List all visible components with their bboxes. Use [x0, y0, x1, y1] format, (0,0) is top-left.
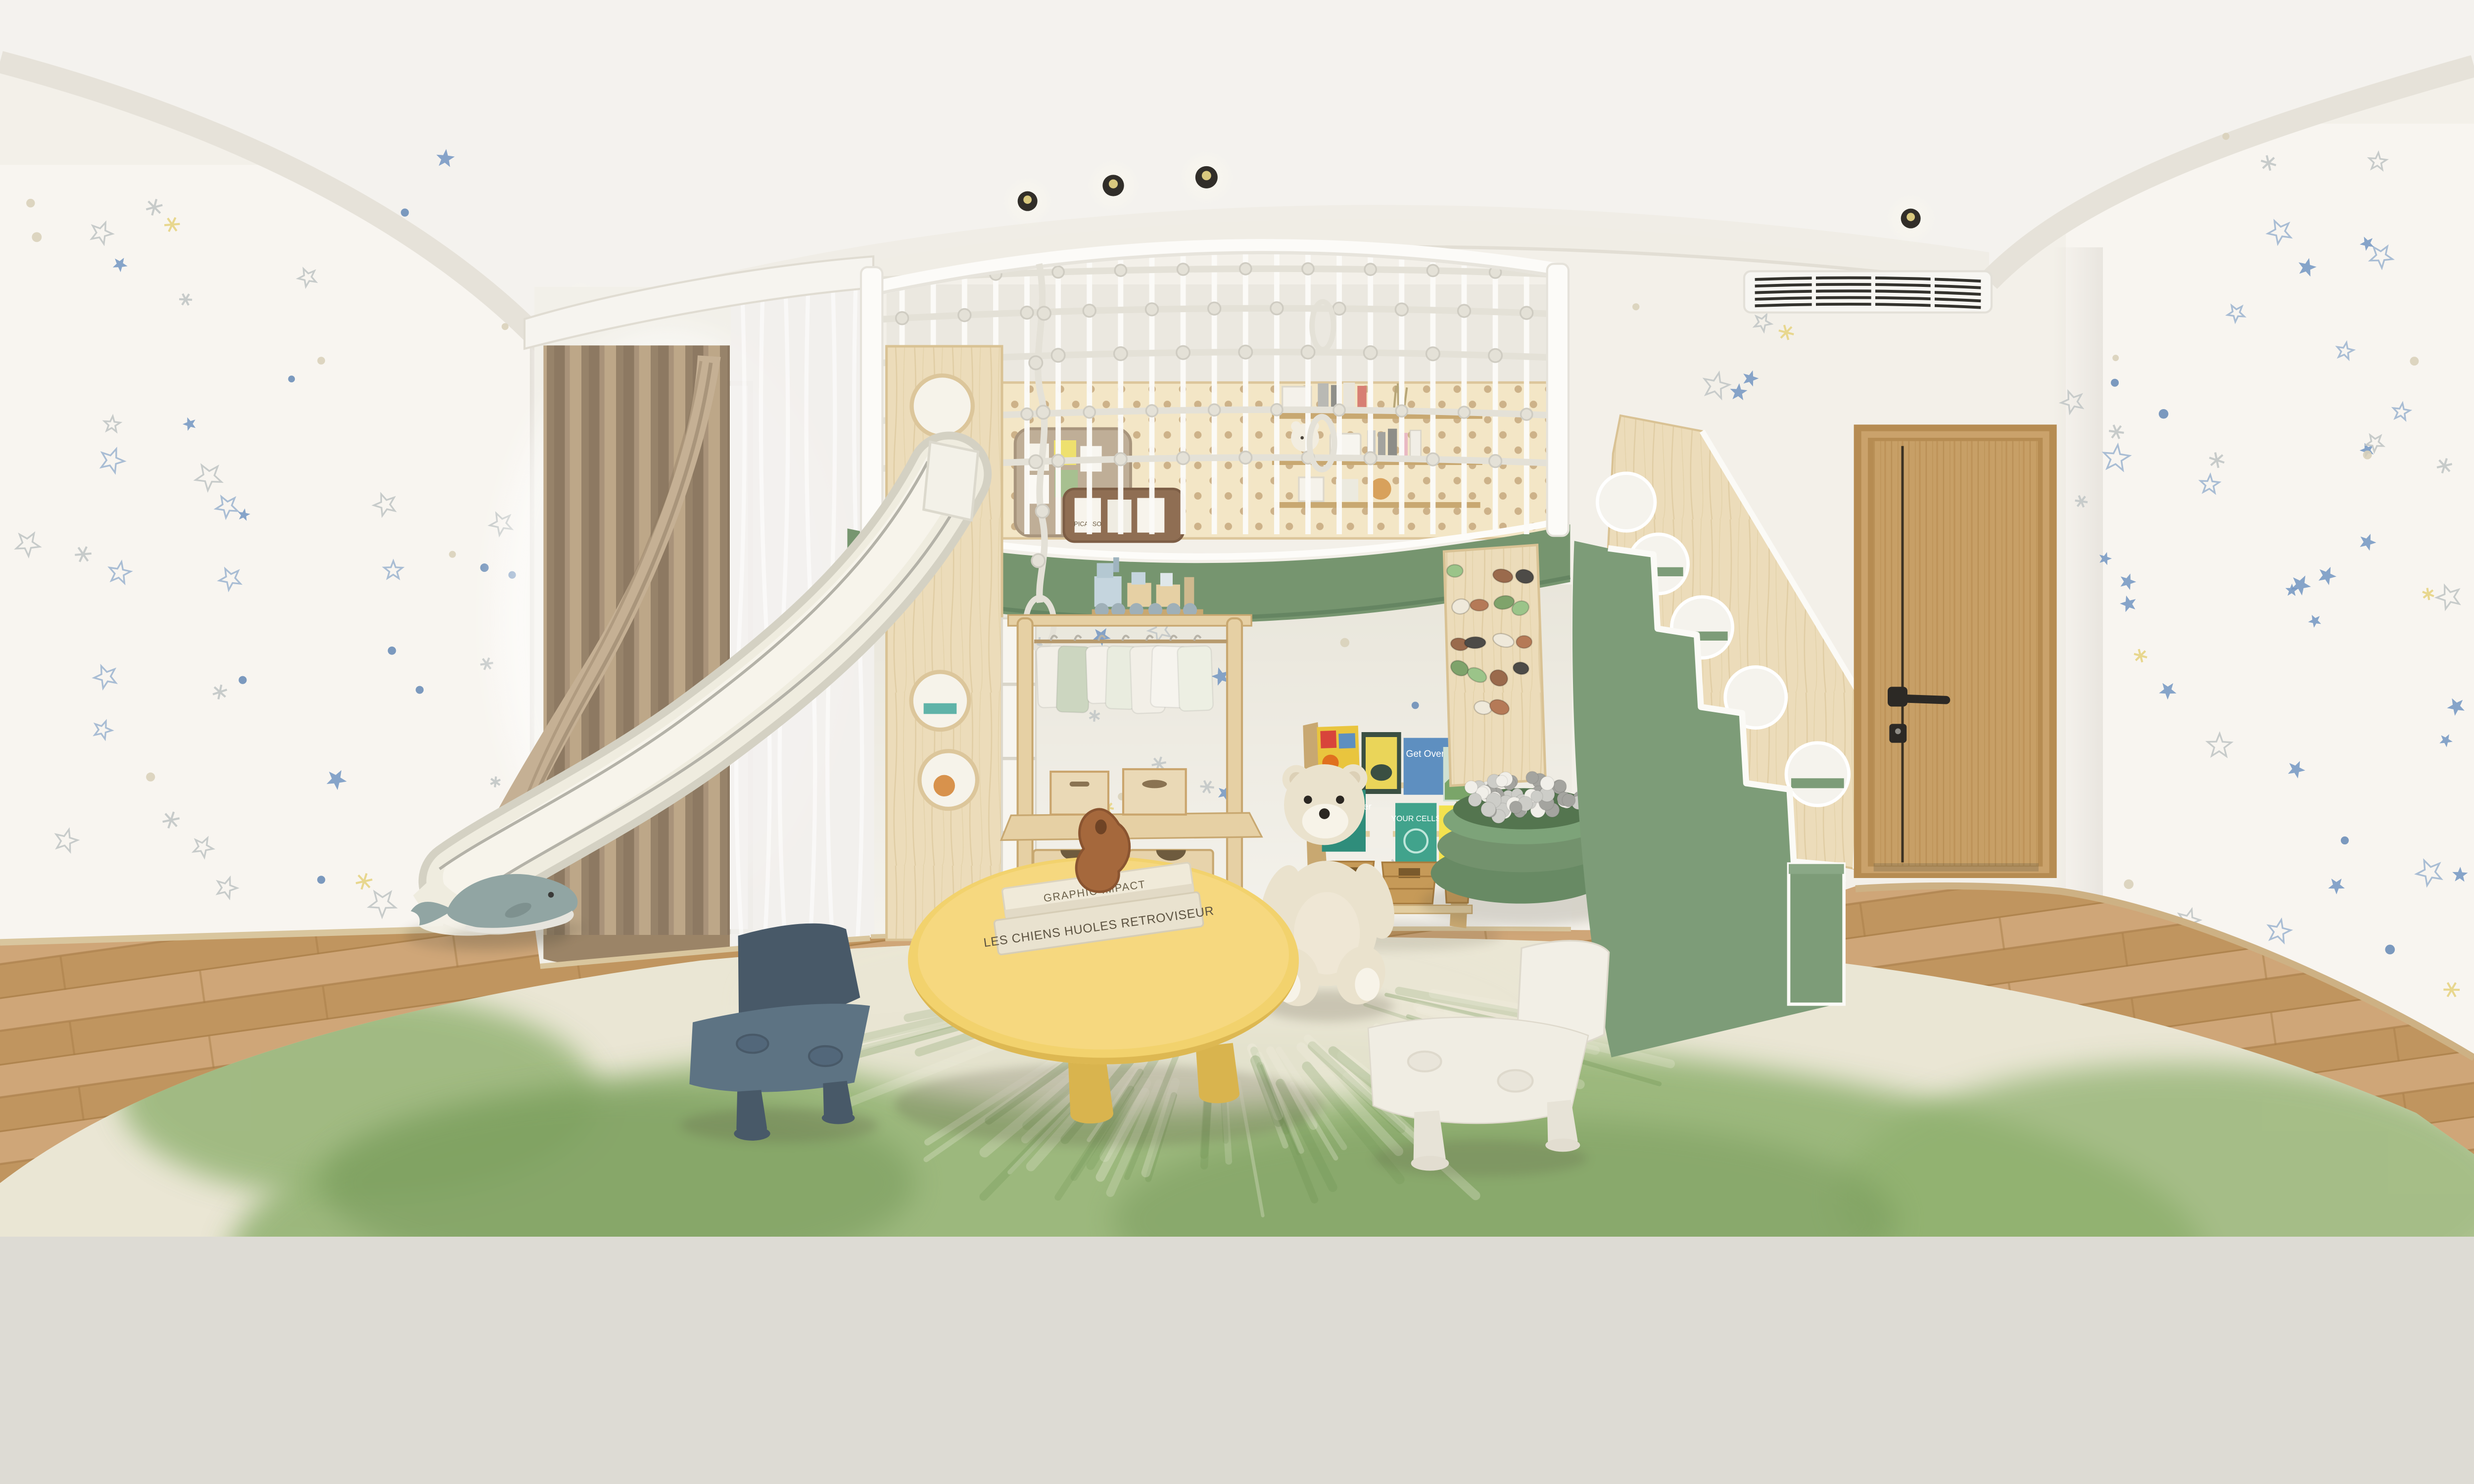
net-knot [1458, 407, 1470, 418]
ac-vent [1744, 271, 1992, 312]
net-knot [1146, 405, 1157, 417]
net-knot [1271, 404, 1283, 416]
downlight-bulb [1202, 171, 1211, 181]
net-knot [1239, 452, 1252, 464]
net-knot [1427, 453, 1439, 465]
net-knot [1271, 302, 1283, 315]
star-dot [317, 876, 325, 883]
stair-porthole-1 [1597, 473, 1655, 531]
net-knot [1364, 452, 1377, 464]
star-dot [1412, 701, 1419, 709]
net-knot [1051, 349, 1065, 362]
star-dot [26, 199, 35, 207]
wardrobe-top [1008, 615, 1252, 626]
pit-ball [1496, 775, 1508, 787]
playroom-panorama: PICASSO [0, 0, 2474, 1237]
book-white [1370, 807, 1393, 848]
net-knot [1021, 307, 1033, 319]
left-wall [0, 165, 536, 948]
climbing-wall [1444, 545, 1545, 786]
star-dot [2112, 355, 2119, 361]
net-knot [1427, 347, 1440, 361]
wardrobe-post-right [1227, 618, 1242, 924]
net-knot [1177, 264, 1189, 275]
climbing-hold [1465, 637, 1486, 649]
net-knot [1052, 266, 1064, 278]
net-knot [1208, 302, 1221, 315]
net-post-right [1547, 264, 1569, 536]
net-knot [1521, 409, 1532, 420]
teddy-nose [1319, 808, 1330, 819]
net-knot [1052, 455, 1064, 467]
star-dot [480, 563, 488, 572]
storage-box-2 [1123, 769, 1186, 815]
net-knot [896, 312, 908, 325]
climbing-hold [1447, 564, 1463, 577]
door-leaf [1874, 441, 2038, 866]
net-knot [1145, 303, 1158, 316]
net-knot [1239, 345, 1252, 359]
star-dot [401, 209, 409, 217]
net-knot [1489, 455, 1502, 467]
downlight-bulb [1023, 195, 1032, 204]
star-dot [238, 676, 246, 684]
star-dot [146, 773, 155, 782]
panorama-canvas: PICASSO [0, 0, 2474, 1237]
net-knot [1083, 305, 1095, 317]
wardrobe-shelf [1001, 813, 1262, 840]
net-knot [1333, 302, 1345, 315]
climbing-hold [1516, 636, 1532, 648]
star-dot [2111, 379, 2119, 387]
star-dot [416, 686, 424, 694]
stair-porthole-5 [1786, 743, 1849, 806]
net-knot [1301, 345, 1315, 359]
door [1854, 424, 2057, 878]
book-cells-title: YOUR CELLS [1391, 815, 1441, 823]
star-dot [388, 647, 396, 655]
net-knot [1395, 303, 1408, 316]
net-knot [1427, 265, 1438, 276]
net-knot [1114, 347, 1128, 361]
star-dot [502, 323, 509, 330]
star-dot [2124, 880, 2134, 889]
stair-base-box [1789, 864, 1844, 1004]
hanging-garment [1177, 646, 1213, 711]
net-knot [1114, 453, 1127, 465]
net-post-left [861, 267, 882, 539]
tower-porthole-2 [911, 672, 969, 730]
tower-porthole-1 [912, 375, 973, 436]
net-knot [1458, 305, 1471, 317]
slide-entry [924, 442, 978, 520]
net-knot [1364, 346, 1377, 360]
pit-ball [1531, 790, 1543, 802]
climbing-hold [1470, 600, 1488, 611]
net-knot [1396, 405, 1407, 417]
pit-ball [1481, 802, 1496, 817]
star-dot [2410, 357, 2419, 366]
net-knot [1209, 404, 1220, 416]
net-knot [1365, 264, 1376, 275]
downlight-bulb [1906, 213, 1915, 221]
pit-ball [1468, 793, 1481, 806]
net-knot [1521, 307, 1533, 319]
net-knot [1177, 452, 1189, 464]
pit-ball [1562, 793, 1575, 807]
star-dot [2363, 451, 2372, 460]
pit-ball [1540, 776, 1554, 790]
star-dot [2385, 945, 2395, 955]
star-dot [288, 375, 295, 382]
net-knot [1177, 346, 1190, 359]
downlight-bulb [1109, 180, 1118, 188]
pit-ball [1526, 771, 1538, 784]
star-dot [1632, 303, 1639, 310]
star-dot [2341, 836, 2349, 844]
net-knot [1021, 408, 1033, 419]
net-knot [1333, 404, 1345, 416]
star-dot [317, 357, 325, 365]
wall-corner-right [2053, 247, 2103, 948]
star-dot [449, 551, 456, 558]
door-threshold-shadow [1874, 863, 2039, 872]
star-dot [1340, 638, 1350, 648]
star-dot [2159, 409, 2168, 418]
net-knot [958, 309, 971, 322]
pit-ball [1465, 781, 1477, 793]
star-dot [32, 232, 42, 242]
star-dot [2222, 133, 2229, 139]
hanging-clothes [1036, 636, 1213, 714]
net-knot [1240, 263, 1251, 275]
net-knot [1115, 265, 1126, 276]
pit-ball [1554, 780, 1567, 792]
net-knot [1489, 349, 1502, 362]
net-knot [1302, 263, 1314, 275]
pit-ball [1510, 801, 1522, 814]
net-knot [1084, 406, 1095, 417]
book-cells [1395, 803, 1436, 864]
